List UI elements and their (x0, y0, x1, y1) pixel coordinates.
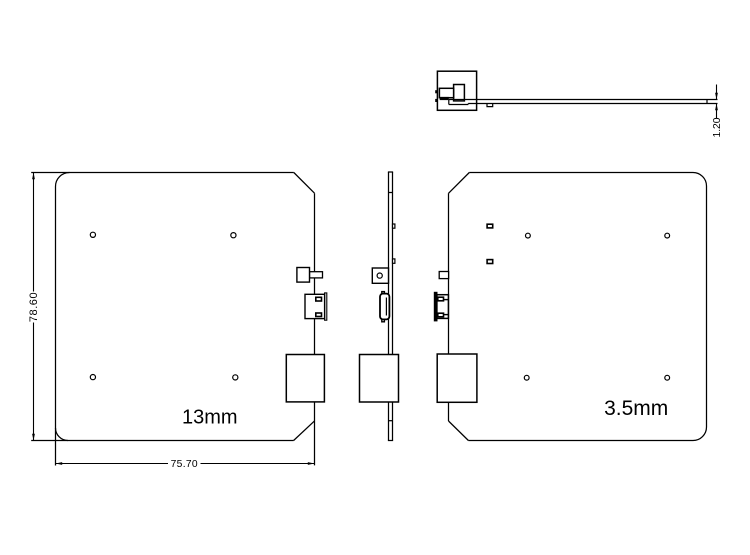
svg-text:3.5mm: 3.5mm (604, 397, 668, 420)
svg-text:13mm: 13mm (182, 407, 238, 429)
svg-text:75.70: 75.70 (171, 459, 198, 470)
svg-text:78.60: 78.60 (28, 292, 40, 322)
svg-text:1.20: 1.20 (712, 117, 723, 137)
